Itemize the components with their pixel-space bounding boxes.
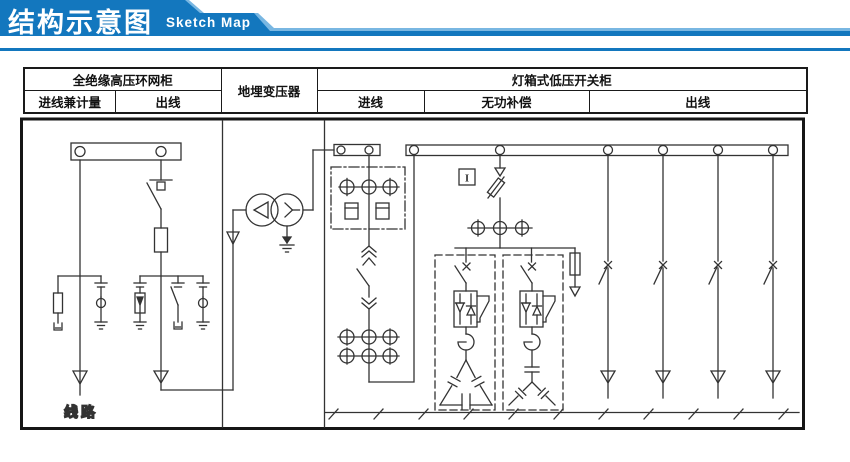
thyristor-module-icon xyxy=(520,291,555,327)
outgoing-feeder-1 xyxy=(599,155,615,398)
hv-ring-main-unit-section: 线路 xyxy=(54,143,234,420)
earth-switch-blade-icon xyxy=(171,287,178,305)
lv-incoming-busbar xyxy=(334,145,380,156)
hv-incoming-feeder xyxy=(54,160,108,395)
transformer-icon xyxy=(246,194,303,226)
earth-icon xyxy=(280,226,294,252)
line-label: 线路 xyxy=(64,404,98,420)
energy-meter-icon xyxy=(345,203,389,219)
lv-outgoing-feeders xyxy=(599,155,780,398)
reactor-icon xyxy=(458,334,474,350)
outgoing-feeder-3 xyxy=(709,155,725,398)
reactive-compensation-section: I xyxy=(435,155,580,410)
lv-incoming-section xyxy=(331,145,414,383)
switch-blade-icon xyxy=(147,183,161,209)
fuse-icon xyxy=(155,228,168,252)
fused-tap xyxy=(570,248,580,296)
buried-transformer-section xyxy=(227,150,334,390)
outgoing-feeder-4 xyxy=(764,155,780,398)
lv-main-busbar xyxy=(406,145,788,156)
hv-busbar xyxy=(71,143,181,160)
thyristor-module-icon xyxy=(454,291,489,327)
plug-arrow-icon xyxy=(495,168,505,176)
metering-box xyxy=(331,167,405,229)
breaker-x-icon xyxy=(463,263,470,270)
hv-outgoing-feeder xyxy=(134,160,233,390)
star-capacitor-icon xyxy=(509,367,555,405)
terminal-cup-icon xyxy=(54,323,62,330)
floor-hatch-line xyxy=(325,409,799,419)
single-line-diagram: 线路 xyxy=(0,0,850,462)
instrument-label: I xyxy=(465,173,469,185)
outgoing-feeder-2 xyxy=(654,155,670,398)
delta-capacitor-icon xyxy=(440,360,492,409)
capacitor-branch-star xyxy=(503,255,563,410)
bypass-switch xyxy=(543,296,555,322)
capacitor-branch-delta xyxy=(435,255,495,410)
reactor-icon xyxy=(524,334,540,350)
drawout-breaker-icon xyxy=(357,246,376,309)
breaker-x-icon xyxy=(529,263,536,270)
bypass-switch xyxy=(477,296,489,322)
